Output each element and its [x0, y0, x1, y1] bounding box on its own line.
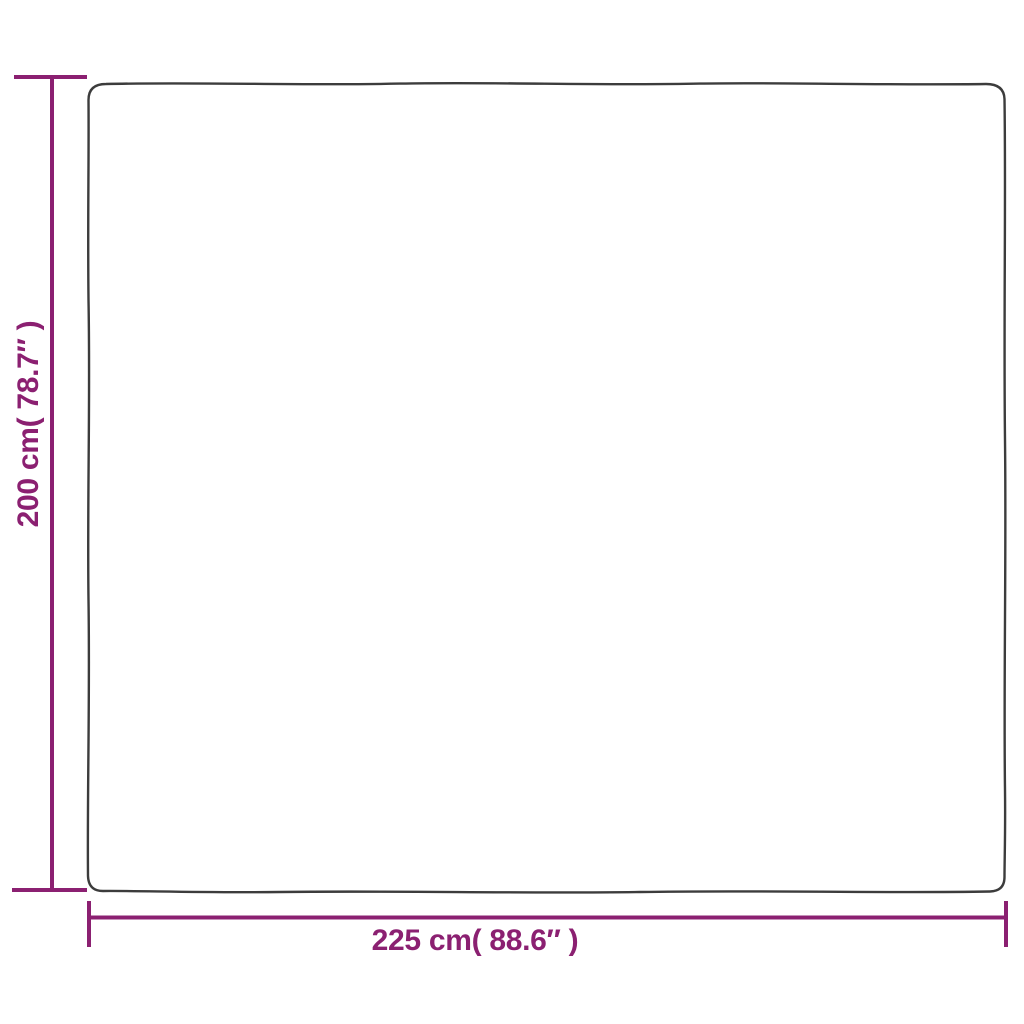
width-dimension-label: 225 cm( 88.6″ ) [372, 924, 579, 958]
height-dimension-label: 200 cm( 78.7″ ) [12, 321, 46, 528]
blanket-outline [88, 83, 1006, 892]
dimension-diagram-canvas [0, 0, 1024, 1024]
product-dimension-diagram: 200 cm( 78.7″ ) 225 cm( 88.6″ ) [0, 0, 1024, 1024]
